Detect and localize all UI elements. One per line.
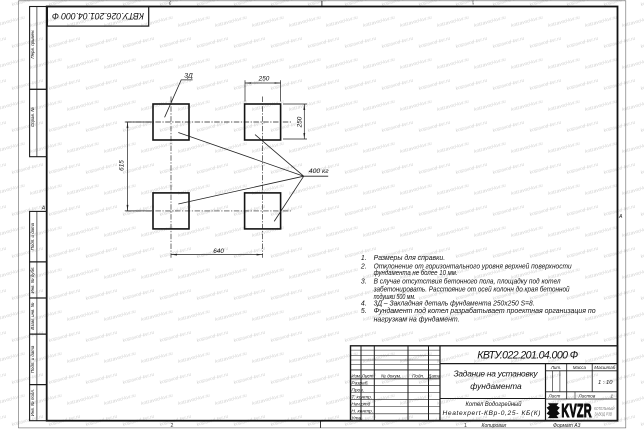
svg-text:KVZR: KVZR [561,401,591,422]
svg-text:1: 1 [471,0,474,5]
svg-text:Фундамент под котел разрабатыв: Фундамент под котел разрабатывает проект… [374,307,596,315]
svg-text:2: 2 [171,423,174,429]
svg-text:Подп. и дата: Подп. и дата [30,345,35,373]
svg-text:Размеры для справки.: Размеры для справки. [374,254,446,262]
svg-text:Н. контр.: Н. контр. [351,409,373,415]
svg-text:Перв. примен.: Перв. примен. [30,29,35,58]
svg-text:подушки 500 мм.: подушки 500 мм. [374,293,416,301]
svg-text:Пров.: Пров. [351,387,364,393]
svg-text:А: А [618,214,623,220]
svg-text:Справ. №: Справ. № [30,107,35,127]
svg-text:Инв. № дубл.: Инв. № дубл. [30,266,35,293]
svg-text:Котел Водогрейный: Котел Водогрейный [466,400,522,408]
svg-text:Подп. и дата: Подп. и дата [30,222,35,250]
svg-text:250: 250 [296,116,303,128]
svg-text:Копировал: Копировал [482,423,507,429]
svg-text:фундамента: фундамента [470,381,522,391]
svg-text:Разраб.: Разраб. [351,380,368,386]
svg-text:Лист: Лист [361,373,374,378]
svg-text:КВТУ.022.201.04.000 Ф: КВТУ.022.201.04.000 Ф [477,350,578,362]
svg-text:4.: 4. [361,301,367,308]
svg-text:1 : 10: 1 : 10 [598,380,613,386]
svg-text:640: 640 [213,248,224,255]
svg-text:Масса: Масса [573,365,587,370]
svg-text:Инв. № подл.: Инв. № подл. [30,389,35,416]
svg-text:Лист: Лист [548,394,561,399]
svg-text:2.: 2. [360,264,367,271]
svg-text:Нач.отд: Нач.отд [351,401,370,407]
svg-text:1: 1 [611,394,614,399]
svg-text:3.: 3. [361,278,367,285]
svg-text:фундамента не более 10 мм.: фундамента не более 10 мм. [374,269,458,277]
svg-text:№ докум.: № докум. [381,373,401,378]
svg-text:Формат А3: Формат А3 [553,423,581,429]
svg-text:5.: 5. [361,308,367,315]
svg-text:Изм: Изм [351,373,360,378]
svg-text:2: 2 [168,0,171,5]
svg-text:615: 615 [119,160,126,171]
svg-text:Т. контр.: Т. контр. [351,394,372,400]
svg-text:Задание на установку: Задание на установку [454,369,539,379]
svg-text:нагрузкам на фундамент.: нагрузкам на фундамент. [374,315,460,323]
svg-text:250: 250 [258,76,270,83]
svg-text:Листов: Листов [578,394,596,399]
svg-text:Взам. инв. №: Взам. инв. № [30,302,35,329]
svg-text:400 кг: 400 кг [309,168,329,175]
svg-text:В случае отсутствия бетонного: В случае отсутствия бетонного пола, площ… [374,277,561,285]
svg-text:Подп.: Подп. [412,373,424,378]
svg-text:Лит.: Лит. [550,365,562,370]
svg-text:забетонировать. Расстояние от: забетонировать. Расстояние от осей колон… [373,286,570,294]
svg-text:Масштаб: Масштаб [594,365,615,370]
svg-text:Дата: Дата [427,373,441,378]
svg-text:3Д: 3Д [184,72,193,79]
svg-text:1.: 1. [361,255,367,262]
svg-text:КОТЕЛЬНЫЙ: КОТЕЛЬНЫЙ [594,406,615,411]
svg-text:1: 1 [464,423,467,429]
svg-text:ЗАВОД РЗВ: ЗАВОД РЗВ [595,411,613,416]
svg-text:КВТУ.026.201.04.000 Ф: КВТУ.026.201.04.000 Ф [52,11,144,21]
svg-text:Heatexpert-КВр-0,25- КБ(К): Heatexpert-КВр-0,25- КБ(К) [443,410,541,417]
svg-text:3Д – Закладная деталь фундамен: 3Д – Закладная деталь фундамента 250х250… [374,300,535,308]
svg-text:Утв.: Утв. [351,416,362,422]
svg-text:А: А [41,206,46,212]
